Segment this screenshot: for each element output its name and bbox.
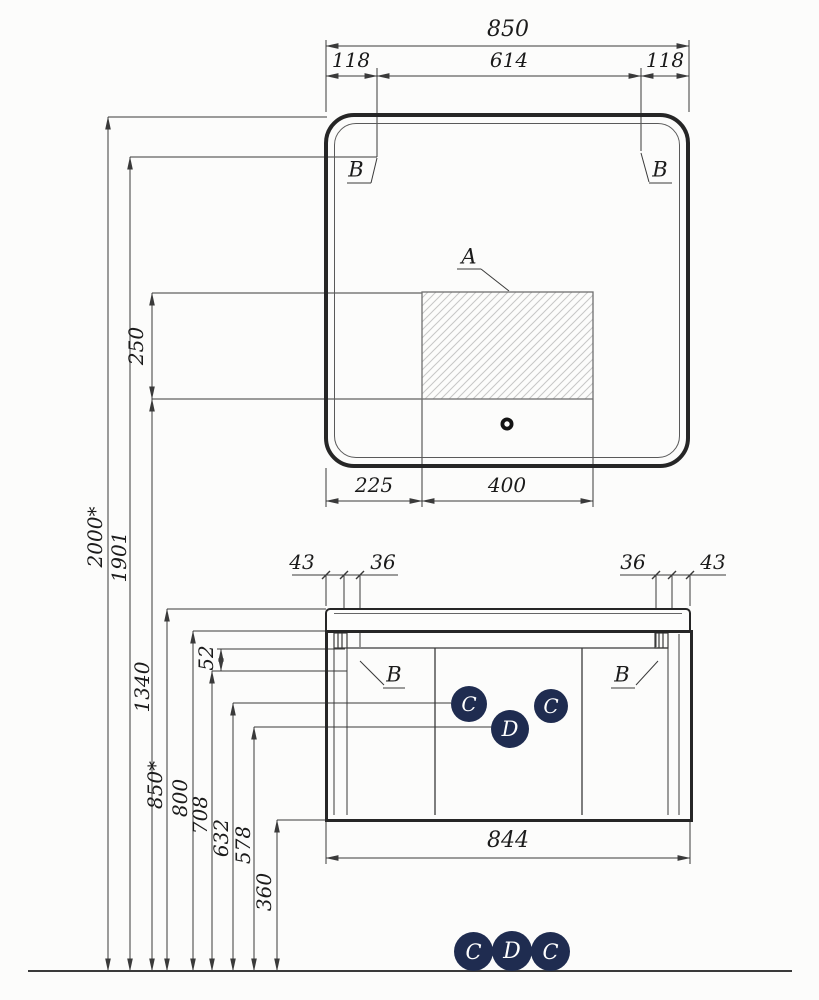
knob-right: C bbox=[534, 689, 568, 723]
basin-rim-line bbox=[334, 613, 682, 614]
legend-right-label: C bbox=[542, 940, 558, 964]
dim-right-offset: 118 bbox=[646, 50, 684, 70]
knob-left: C bbox=[451, 686, 487, 722]
dim-height-1340: 1340 bbox=[132, 662, 152, 713]
dim-height-708: 708 bbox=[190, 796, 210, 834]
dim-height-800: 800 bbox=[170, 779, 190, 817]
dim-bottom-center: 400 bbox=[488, 475, 526, 495]
knob-center: D bbox=[491, 710, 529, 748]
label-door-left: B bbox=[386, 665, 401, 686]
label-light-zone: A bbox=[461, 247, 476, 268]
legend-knob-right: C bbox=[531, 932, 570, 971]
legend-left-label: C bbox=[465, 940, 481, 964]
dim-bottom-left: 225 bbox=[355, 475, 393, 495]
legend-knob-center: D bbox=[492, 931, 532, 971]
dim-cabinet-offset-left: 43 bbox=[289, 552, 314, 572]
dim-cabinet-width: 844 bbox=[487, 830, 529, 852]
dim-height-850: 850* bbox=[145, 761, 165, 809]
dim-cabinet-offset-right: 43 bbox=[700, 552, 725, 572]
dim-height-632: 632 bbox=[211, 819, 231, 857]
knob-center-label: D bbox=[502, 717, 519, 741]
dim-cabinet-bracket-right: 36 bbox=[620, 552, 645, 572]
dim-overall-width: 850 bbox=[487, 19, 529, 41]
dim-center-width: 614 bbox=[490, 50, 528, 70]
dim-zone-height: 250 bbox=[126, 327, 146, 365]
label-mirror-corner-left: B bbox=[348, 160, 363, 181]
label-mirror-corner-right: B bbox=[652, 160, 667, 181]
dim-height-578: 578 bbox=[233, 826, 253, 864]
label-door-right: B bbox=[614, 665, 629, 686]
legend-knob-left: C bbox=[454, 932, 493, 971]
knob-right-label: C bbox=[543, 694, 558, 718]
knob-left-label: C bbox=[461, 692, 476, 716]
dim-cabinet-bracket-left: 36 bbox=[370, 552, 395, 572]
dim-height-360: 360 bbox=[254, 873, 274, 911]
legend-center-label: D bbox=[503, 939, 521, 964]
mirror-inner-frame bbox=[334, 123, 680, 458]
technical-drawing-canvas: C C D C C D 850 118 614 118 B B A 250 22… bbox=[0, 0, 819, 1000]
dim-height-1901: 1901 bbox=[109, 532, 129, 583]
dim-left-offset: 118 bbox=[332, 50, 370, 70]
dim-height-2000: 2000* bbox=[85, 507, 105, 568]
dim-height-52: 52 bbox=[196, 645, 216, 670]
mirror-outline bbox=[324, 113, 690, 468]
